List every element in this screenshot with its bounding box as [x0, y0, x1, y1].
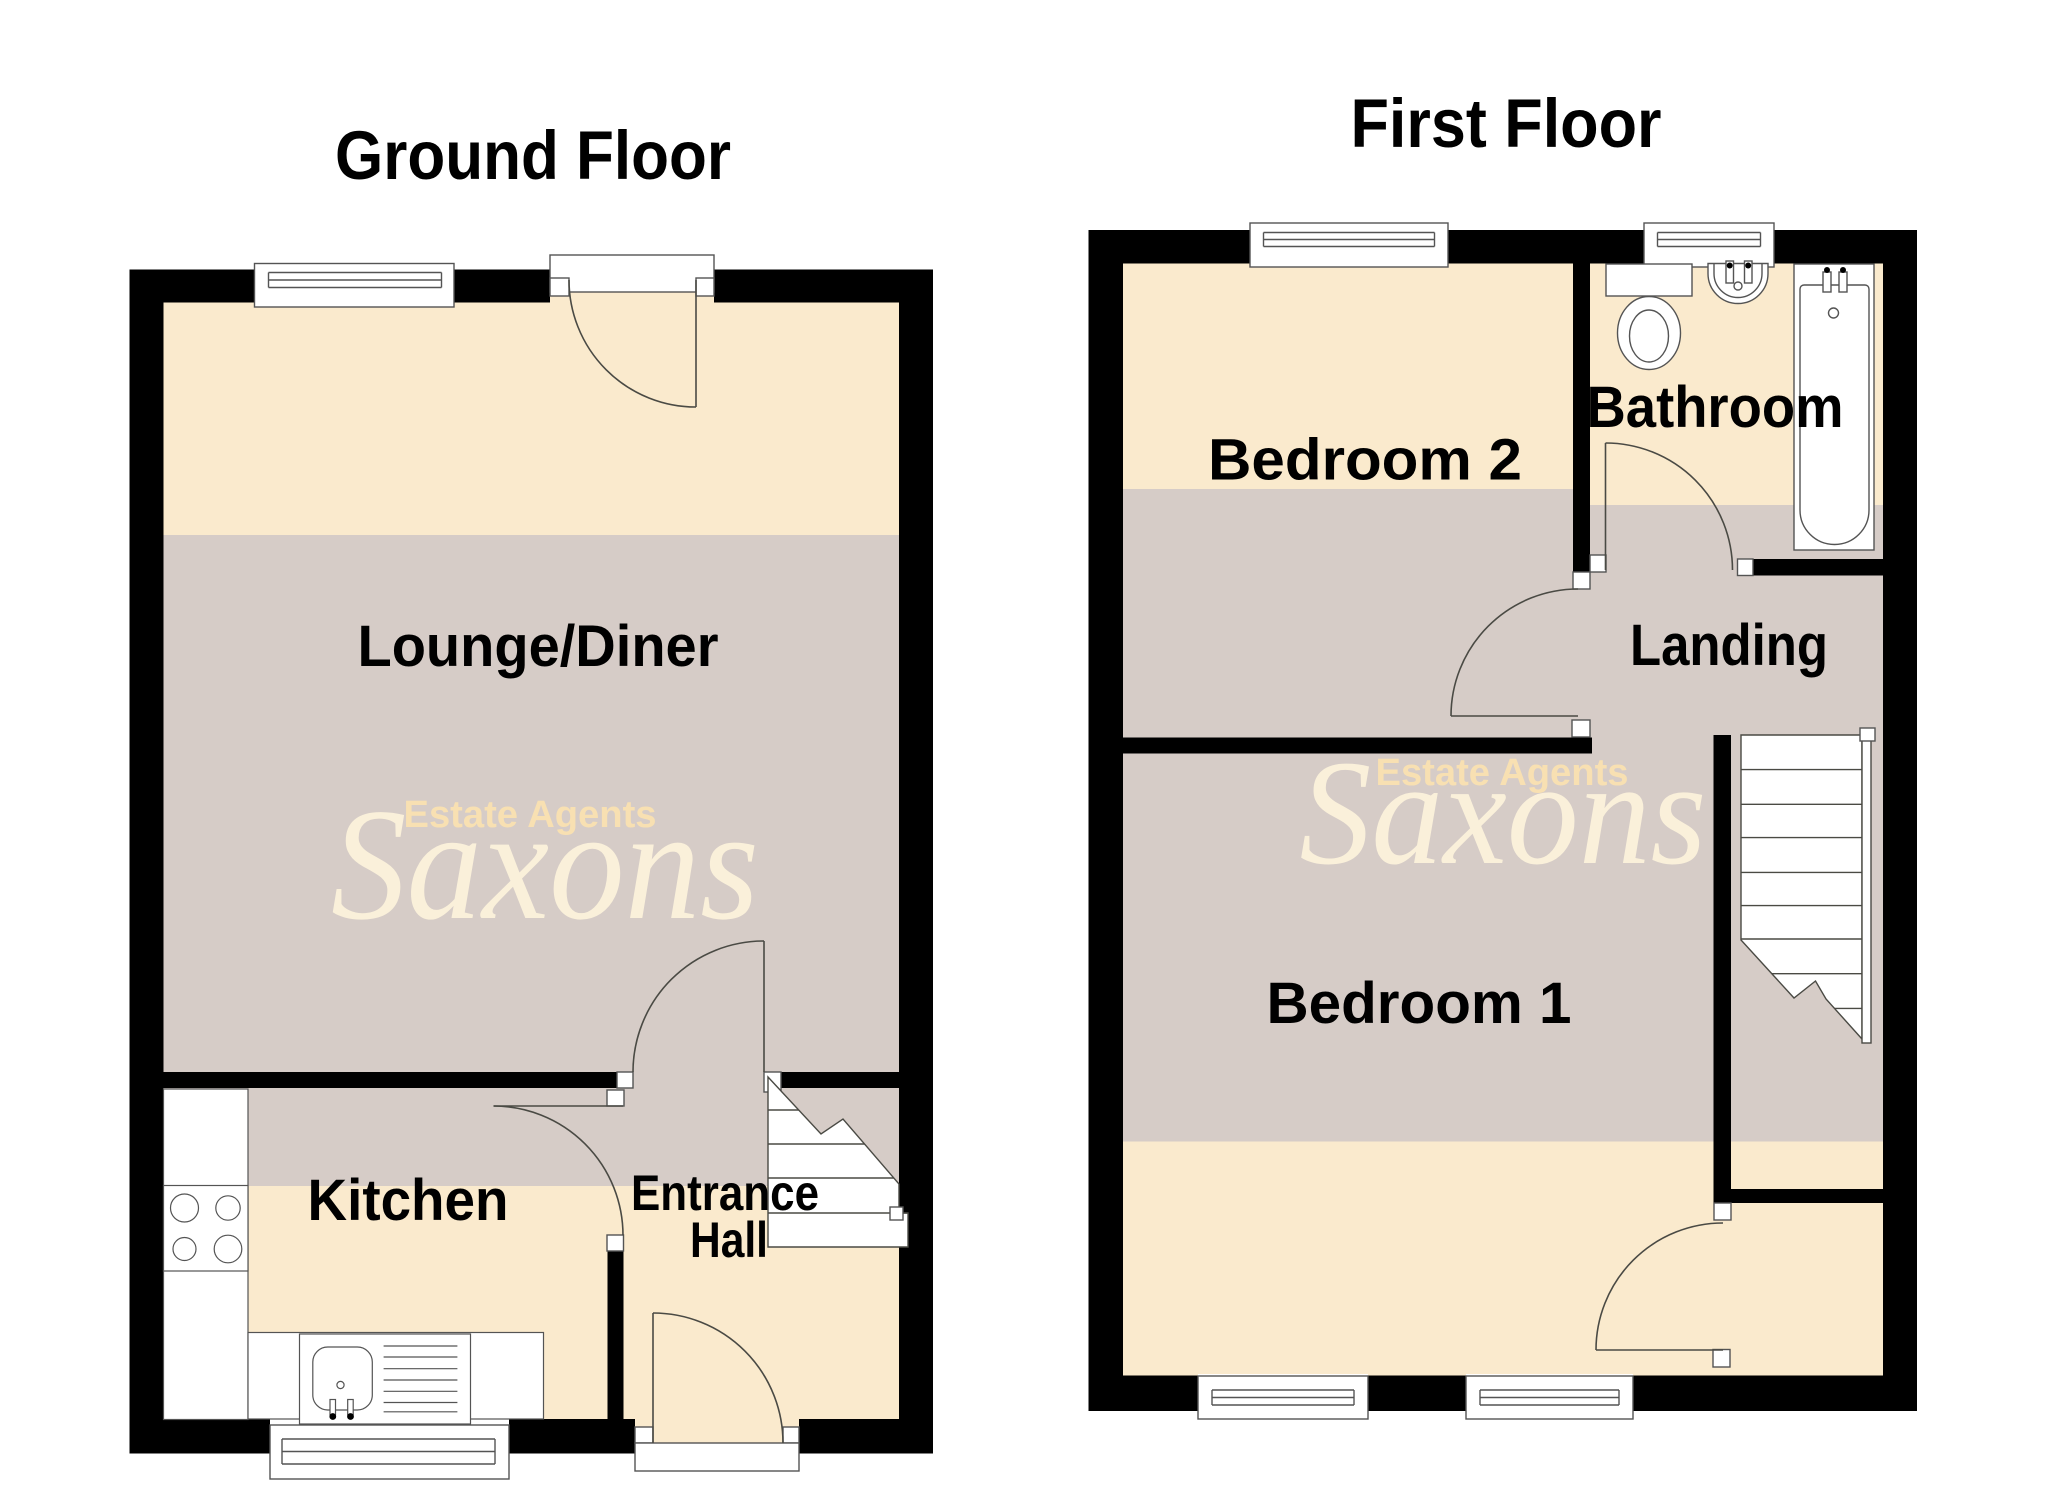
- svg-text:Bathroom: Bathroom: [1587, 375, 1844, 440]
- svg-text:Lounge/Diner: Lounge/Diner: [358, 614, 719, 679]
- svg-text:Saxons: Saxons: [1300, 730, 1707, 896]
- svg-text:Saxons: Saxons: [331, 775, 759, 953]
- svg-text:Bedroom 1: Bedroom 1: [1267, 971, 1572, 1036]
- svg-text:Kitchen: Kitchen: [308, 1168, 509, 1233]
- svg-text:Bedroom 2: Bedroom 2: [1208, 428, 1522, 493]
- svg-text:Hall: Hall: [690, 1212, 768, 1268]
- svg-text:Landing: Landing: [1630, 613, 1828, 678]
- svg-text:Ground Floor: Ground Floor: [335, 117, 731, 194]
- svg-text:First Floor: First Floor: [1351, 85, 1662, 162]
